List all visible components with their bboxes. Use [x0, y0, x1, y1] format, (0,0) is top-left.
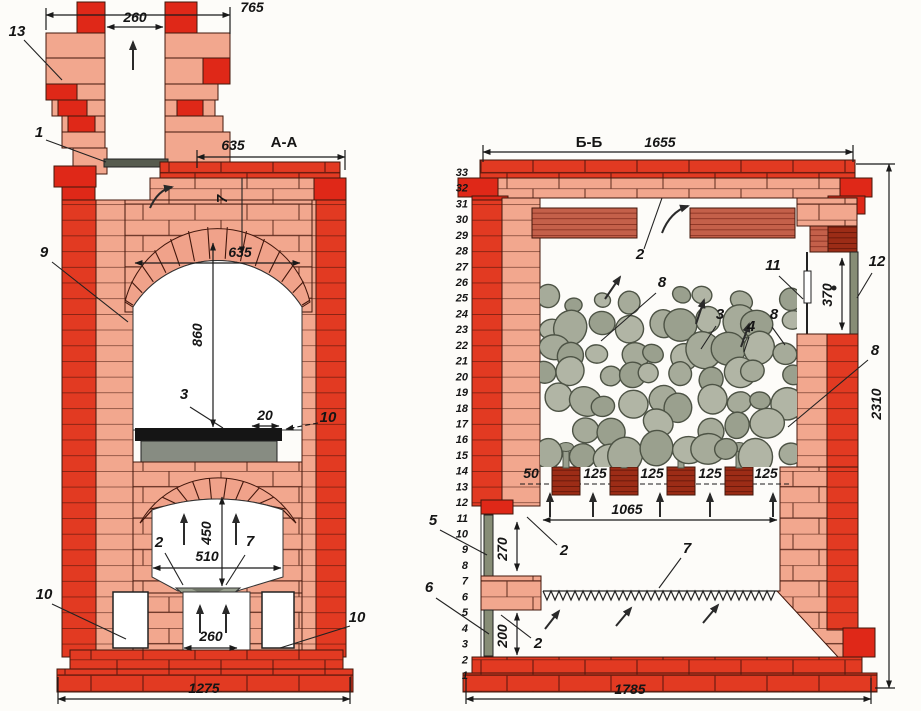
part-8-left: 8 [658, 274, 667, 291]
stone [779, 287, 803, 311]
b-right-wall-outer [827, 334, 858, 467]
row-number-15: 15 [456, 450, 469, 462]
b-ceiling-row [472, 178, 850, 198]
stone [781, 309, 805, 331]
b-right-cap-1 [840, 178, 872, 197]
b-right-top-block [797, 198, 857, 226]
part-5: 5 [429, 512, 438, 529]
row-number-30: 30 [456, 214, 469, 226]
row-number-3: 3 [462, 639, 468, 651]
row-number-22: 22 [455, 340, 468, 352]
b-left-wall-inner [502, 198, 540, 506]
dim-total-height: 2310 [868, 388, 884, 420]
fire-door-5 [484, 515, 493, 576]
right-wall-outer [316, 200, 346, 657]
row-number-11: 11 [457, 513, 468, 525]
course-numbers: 1234567891011121314151617181920212223242… [455, 167, 469, 682]
part-2: 2 [154, 534, 164, 551]
chimney-right-pillar [165, 2, 230, 162]
row-number-21: 21 [455, 356, 468, 368]
stone [571, 417, 600, 444]
part-2-bottom: 2 [533, 635, 543, 652]
stone [617, 290, 641, 315]
row-number-24: 24 [455, 308, 468, 320]
dim-stone-gap: 50 [523, 465, 539, 481]
b-base-row-2 [463, 673, 877, 692]
row-number-8: 8 [462, 560, 469, 572]
stove-cross-sections: 765 260 А-А 635 7 13 1 9 635 860 3 20 10… [0, 0, 921, 711]
part-13: 13 [9, 23, 26, 40]
dim-rail-span: 1065 [611, 501, 642, 517]
b-hatch-block [810, 226, 828, 252]
dim-oven-height: 860 [189, 323, 205, 347]
stone [638, 428, 676, 468]
stone [748, 390, 771, 410]
dim-ash-height: 200 [494, 624, 510, 649]
row-number-19: 19 [456, 387, 469, 399]
row-number-23: 23 [455, 324, 468, 336]
stone [618, 390, 649, 419]
row-number-25: 25 [455, 293, 469, 305]
row-number-5: 5 [462, 607, 469, 619]
row-number-33: 33 [456, 167, 468, 179]
base-row-1 [70, 650, 343, 671]
part-11: 11 [765, 257, 781, 274]
chimney-left-pillar [46, 2, 107, 174]
stone [694, 380, 732, 418]
row-number-6: 6 [462, 591, 469, 603]
flue-block-left [532, 208, 637, 238]
part-7-top: 7 [214, 194, 231, 203]
oven-floor-plate [135, 428, 282, 441]
row-number-9: 9 [462, 544, 469, 556]
row-number-7: 7 [462, 576, 469, 588]
section-b-drawing: Б-Б 1655 2 11 370 12 8 3 4 8 8 2310 50 1… [425, 134, 895, 704]
b-bottom-right-block [843, 628, 875, 657]
row-number-27: 27 [455, 261, 469, 273]
part-8-mid: 8 [770, 306, 779, 323]
b-ledge-red [481, 500, 513, 514]
row-number-28: 28 [455, 246, 469, 258]
part-7-b: 7 [683, 540, 692, 557]
dim-base-a: 1275 [188, 680, 219, 696]
part-8-right: 8 [871, 342, 880, 359]
b-left-wall-outer [472, 200, 502, 506]
part-10-left: 10 [36, 586, 53, 603]
dim-firebox-height: 450 [198, 521, 214, 546]
oven-chamber [133, 260, 302, 430]
part-10-bottom-right: 10 [349, 609, 366, 626]
flue-block-right [690, 208, 795, 238]
dim-chimney-top: 765 [240, 0, 264, 15]
stone [588, 310, 617, 336]
blueprint-page: 765 260 А-А 635 7 13 1 9 635 860 3 20 10… [0, 0, 921, 711]
dim-rail-pitch-3: 125 [698, 465, 722, 481]
part-2-mid: 2 [559, 542, 569, 559]
cleanout-left [113, 592, 148, 648]
dim-door-channel: 370 [819, 283, 835, 307]
b-dark-block [828, 226, 857, 252]
part-12: 12 [869, 253, 886, 270]
dim-oven-width: 635 [228, 244, 252, 260]
part-6: 6 [425, 579, 434, 596]
stone [691, 285, 713, 305]
row-number-26: 26 [455, 277, 469, 289]
cleanout-right [262, 592, 294, 648]
stone-fill [530, 282, 809, 478]
dim-slab-overhang: 20 [256, 407, 273, 423]
stone [670, 284, 694, 307]
part-10-right: 10 [320, 409, 337, 426]
left-wall-outer [62, 200, 96, 657]
b-top-red-row [480, 160, 855, 178]
dim-base-b: 1785 [614, 681, 645, 697]
steam-door-12 [850, 252, 858, 334]
section-a-title: А-А [271, 134, 298, 151]
dim-firebox-width: 510 [195, 548, 219, 564]
b-base-row-1 [472, 657, 862, 674]
part-4: 4 [746, 318, 756, 335]
firebox-chamber [152, 499, 283, 591]
dim-rail-pitch-4: 125 [754, 465, 778, 481]
dim-b-top-width: 1655 [644, 134, 675, 150]
row-number-4: 4 [461, 623, 468, 635]
oven-floor-slab [141, 441, 277, 463]
dim-rail-pitch-1: 125 [583, 465, 607, 481]
row-number-2: 2 [461, 654, 468, 666]
section-a-drawing: 765 260 А-А 635 7 13 1 9 635 860 3 20 10… [9, 0, 366, 704]
row-number-17: 17 [456, 419, 469, 431]
row-number-13: 13 [456, 481, 468, 493]
row-number-18: 18 [456, 403, 469, 415]
stone [722, 410, 751, 441]
part-1: 1 [35, 124, 43, 141]
stone [585, 344, 609, 364]
part-3: 3 [180, 386, 189, 403]
zigzag-grate [543, 591, 777, 600]
dim-rail-pitch-2: 125 [640, 465, 664, 481]
row-number-31: 31 [456, 198, 468, 210]
row-number-32: 32 [456, 183, 468, 195]
b-lower-right-red [827, 467, 858, 630]
row-number-29: 29 [455, 230, 469, 242]
row-number-10: 10 [456, 529, 469, 541]
dim-top-width: 635 [221, 137, 245, 153]
part-7: 7 [246, 533, 255, 550]
stone [545, 383, 572, 412]
dim-flue-width: 260 [122, 9, 147, 25]
dim-mid-height: 270 [494, 537, 510, 562]
row-number-16: 16 [456, 434, 469, 446]
row-number-12: 12 [456, 497, 468, 509]
row-number-14: 14 [456, 466, 468, 478]
damper-plate [104, 159, 168, 167]
b-right-wall-inner [797, 334, 827, 467]
door-latch-11 [804, 271, 811, 303]
part-2-top: 2 [635, 246, 645, 263]
dim-outlet-width: 260 [198, 628, 223, 644]
row-number-20: 20 [455, 371, 469, 383]
part-9: 9 [40, 244, 49, 261]
section-b-title: Б-Б [576, 134, 603, 151]
part-3-b: 3 [716, 306, 725, 323]
b-ledge-pink [481, 576, 541, 610]
row-number-1: 1 [462, 670, 468, 682]
